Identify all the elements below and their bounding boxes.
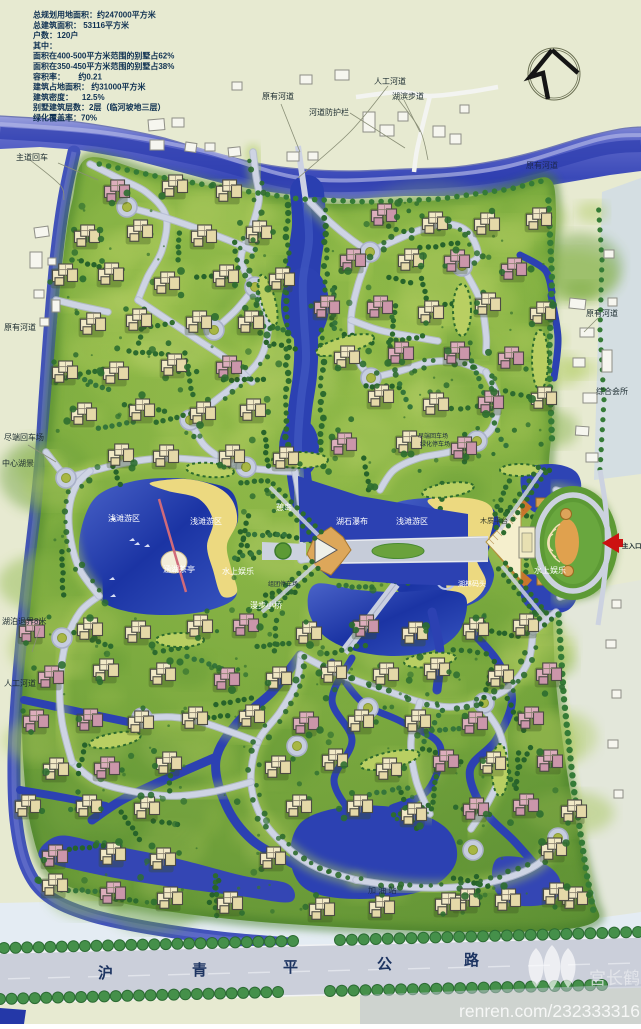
svg-text:憩岛: 憩岛: [276, 502, 292, 512]
svg-text:浅滩游区: 浅滩游区: [396, 516, 428, 526]
svg-text:户数：120户: 户数：120户: [33, 30, 78, 40]
svg-text:绿化停车场: 绿化停车场: [420, 440, 450, 448]
svg-text:组团停车场: 组团停车场: [268, 580, 298, 588]
svg-text:原有河道: 原有河道: [4, 322, 36, 332]
svg-text:加 油 站: 加 油 站: [368, 885, 396, 895]
svg-text:平: 平: [283, 959, 298, 976]
svg-text:别墅建筑层数：2层（临河坡地三层）: 别墅建筑层数：2层（临河坡地三层）: [32, 102, 165, 112]
svg-text:公: 公: [377, 956, 392, 973]
svg-text:主入口: 主入口: [622, 541, 641, 550]
svg-text:湖林码头: 湖林码头: [458, 579, 486, 588]
svg-text:总规划用地面积：约247000平方米: 总规划用地面积：约247000平方米: [33, 10, 157, 20]
svg-text:综合会所: 综合会所: [596, 386, 628, 396]
svg-text:浅滩游区: 浅滩游区: [190, 516, 222, 526]
svg-text:水上娱乐: 水上娱乐: [534, 565, 566, 575]
svg-text:建筑密度： 12.5%: 建筑密度： 12.5%: [32, 92, 105, 102]
svg-text:其中：: 其中：: [33, 40, 57, 50]
svg-text:宫长鹤: 宫长鹤: [589, 969, 640, 988]
svg-text:沪: 沪: [98, 964, 113, 982]
svg-text:路: 路: [464, 951, 480, 969]
svg-text:漫步小桥: 漫步小桥: [250, 600, 282, 610]
svg-text:绿化覆盖率：70%: 绿化覆盖率：70%: [33, 113, 97, 123]
svg-text:容积率： 约0.21: 容积率： 约0.21: [32, 71, 102, 81]
svg-text:湖滨步道: 湖滨步道: [392, 91, 424, 101]
svg-text:河道防护栏: 河道防护栏: [309, 107, 349, 117]
svg-text:人工河道: 人工河道: [374, 76, 406, 86]
svg-text:原有河道: 原有河道: [586, 308, 618, 318]
svg-text:中心湖景: 中心湖景: [2, 458, 34, 468]
svg-text:人工河道: 人工河道: [4, 678, 36, 688]
svg-text:湖泊退界8米: 湖泊退界8米: [2, 616, 46, 626]
svg-text:水上娱乐: 水上娱乐: [222, 566, 254, 576]
svg-text:总建筑面积： 53116平方米: 总建筑面积： 53116平方米: [33, 20, 130, 30]
svg-text:原有河道: 原有河道: [526, 160, 558, 170]
svg-text:主道回车: 主道回车: [16, 152, 48, 162]
svg-text:renren.com/232333316: renren.com/232333316: [459, 1001, 640, 1021]
svg-text:湖石瀑布: 湖石瀑布: [336, 516, 368, 526]
svg-text:面积在400-500平方米范围的别墅占62%: 面积在400-500平方米范围的别墅占62%: [33, 51, 174, 61]
svg-text:尽端回车场: 尽端回车场: [418, 432, 448, 440]
svg-text:面积在350-450平方米范围的别墅占38%: 面积在350-450平方米范围的别墅占38%: [33, 61, 174, 71]
svg-text:建筑占地面积： 约31000平方米: 建筑占地面积： 约31000平方米: [32, 82, 146, 92]
svg-text:青: 青: [192, 961, 207, 979]
svg-text:原有河道: 原有河道: [262, 91, 294, 101]
svg-text:浅滩游区: 浅滩游区: [108, 513, 140, 523]
svg-text:涵湖茶亭: 涵湖茶亭: [163, 564, 195, 574]
svg-text:尽端回车场: 尽端回车场: [4, 432, 44, 442]
svg-text:木质平台: 木质平台: [480, 516, 508, 525]
